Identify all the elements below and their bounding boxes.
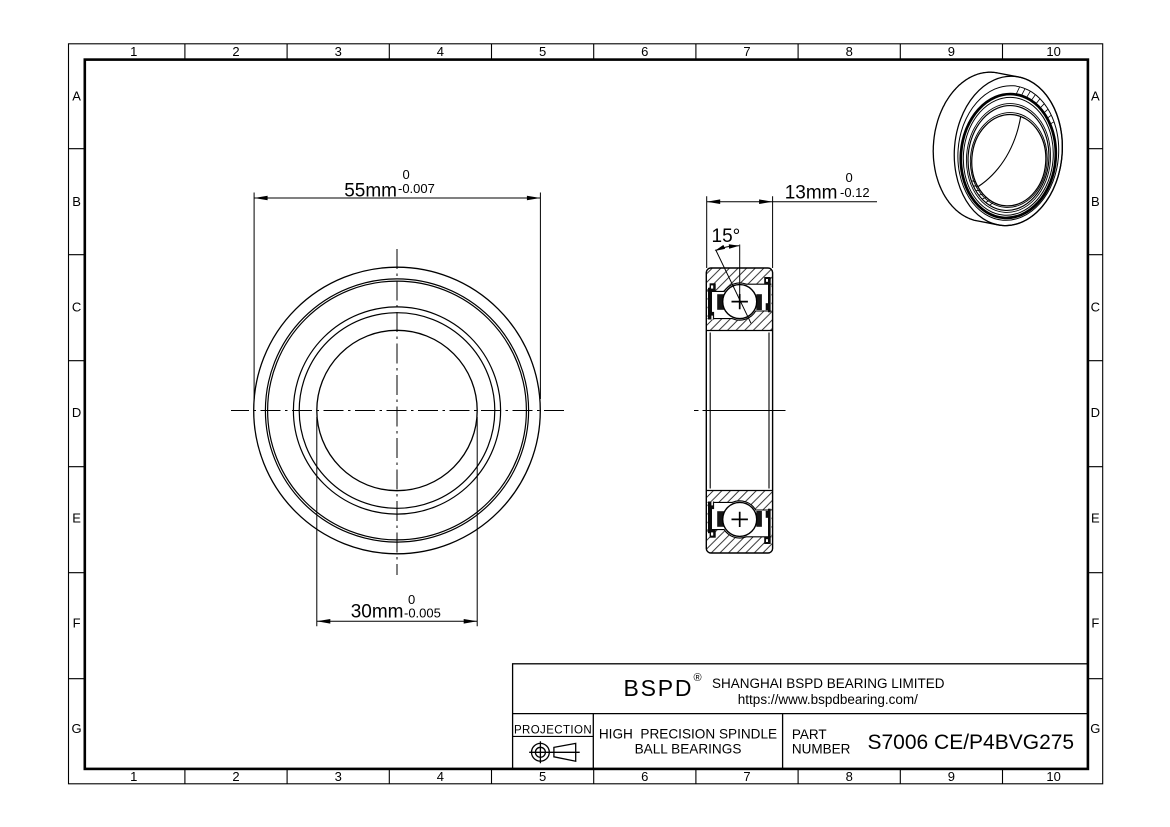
svg-text:PART: PART <box>792 727 827 742</box>
svg-text:NUMBER: NUMBER <box>792 742 851 757</box>
svg-text:8: 8 <box>846 44 853 59</box>
svg-text:4: 4 <box>437 44 444 59</box>
svg-text:C: C <box>72 300 81 315</box>
svg-text:BALL BEARINGS: BALL BEARINGS <box>635 742 742 757</box>
svg-text:13mm: 13mm <box>785 182 838 203</box>
svg-text:5: 5 <box>539 769 546 784</box>
svg-text:HIGH PRECISION SPINDLE: HIGH PRECISION SPINDLE <box>599 726 777 741</box>
svg-text:-0.12: -0.12 <box>840 185 870 200</box>
svg-text:B: B <box>1091 194 1100 209</box>
svg-text:3: 3 <box>335 44 342 59</box>
svg-text:7: 7 <box>743 44 750 59</box>
svg-text:30mm: 30mm <box>351 601 404 622</box>
svg-text:2: 2 <box>232 769 239 784</box>
svg-text:PROJECTION: PROJECTION <box>514 724 592 736</box>
svg-text:-0.005: -0.005 <box>404 605 441 620</box>
svg-text:10: 10 <box>1046 44 1060 59</box>
svg-text:D: D <box>1091 405 1100 420</box>
svg-text:10: 10 <box>1046 769 1060 784</box>
svg-text:S7006 CE/P4BVG275: S7006 CE/P4BVG275 <box>867 731 1074 754</box>
svg-text:D: D <box>72 405 81 420</box>
svg-text:2: 2 <box>232 44 239 59</box>
svg-text:5: 5 <box>539 44 546 59</box>
svg-text:G: G <box>1090 721 1100 736</box>
svg-text:F: F <box>1091 616 1099 631</box>
svg-text:BSPD: BSPD <box>624 675 694 701</box>
svg-text:-0.007: -0.007 <box>398 181 435 196</box>
svg-text:3: 3 <box>335 769 342 784</box>
svg-text:A: A <box>72 89 81 104</box>
svg-text:1: 1 <box>130 769 137 784</box>
svg-text:SHANGHAI BSPD BEARING LIMITED: SHANGHAI BSPD BEARING LIMITED <box>712 676 945 691</box>
svg-text:https://www.bspdbearing.com/: https://www.bspdbearing.com/ <box>738 692 918 707</box>
svg-text:0: 0 <box>403 167 410 182</box>
svg-text:6: 6 <box>641 769 648 784</box>
svg-text:®: ® <box>694 672 702 684</box>
svg-text:A: A <box>1091 89 1100 104</box>
svg-text:8: 8 <box>846 769 853 784</box>
svg-text:G: G <box>72 721 82 736</box>
svg-text:E: E <box>1091 510 1100 525</box>
svg-text:F: F <box>73 616 81 631</box>
svg-text:7: 7 <box>743 769 750 784</box>
svg-text:9: 9 <box>948 769 955 784</box>
svg-text:4: 4 <box>437 769 444 784</box>
svg-text:6: 6 <box>641 44 648 59</box>
svg-text:0: 0 <box>846 170 853 185</box>
svg-text:15°: 15° <box>712 226 741 247</box>
svg-text:9: 9 <box>948 44 955 59</box>
svg-text:1: 1 <box>130 44 137 59</box>
svg-text:55mm: 55mm <box>344 181 397 202</box>
svg-text:E: E <box>72 510 81 525</box>
svg-text:C: C <box>1091 300 1100 315</box>
svg-text:B: B <box>72 194 81 209</box>
